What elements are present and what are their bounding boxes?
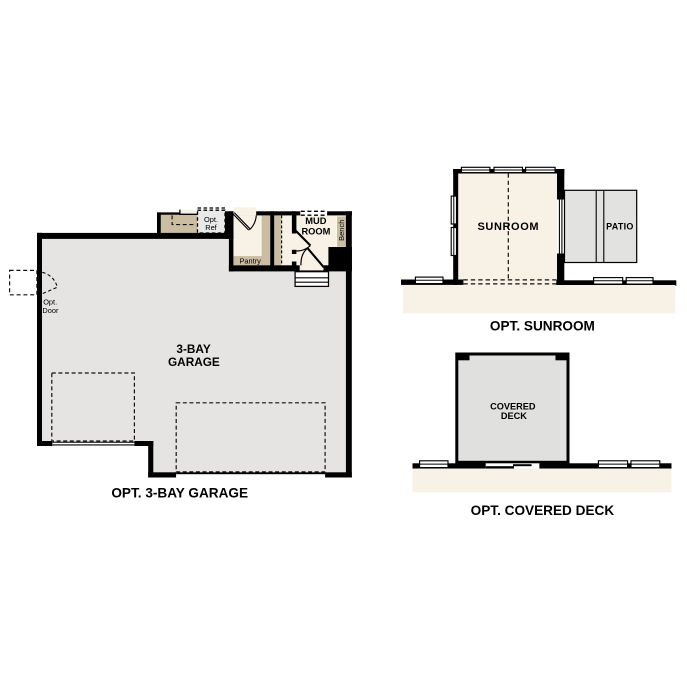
svg-text:OPT. 3-BAY GARAGE: OPT. 3-BAY GARAGE	[111, 486, 248, 501]
svg-text:ROOM: ROOM	[301, 226, 330, 236]
svg-text:SUNROOM: SUNROOM	[477, 221, 539, 233]
svg-text:MUD: MUD	[305, 216, 326, 226]
svg-text:Door: Door	[42, 306, 59, 315]
svg-text:3-BAY: 3-BAY	[176, 342, 210, 356]
svg-text:Ref: Ref	[205, 223, 217, 232]
svg-text:Pantry: Pantry	[240, 256, 262, 265]
svg-text:OPT. COVERED DECK: OPT. COVERED DECK	[471, 503, 615, 518]
svg-text:Bench: Bench	[337, 220, 346, 241]
svg-text:GARAGE: GARAGE	[168, 355, 220, 369]
svg-text:OPT. SUNROOM: OPT. SUNROOM	[490, 319, 595, 334]
svg-text:DECK: DECK	[501, 411, 527, 421]
svg-text:PATIO: PATIO	[606, 222, 634, 232]
